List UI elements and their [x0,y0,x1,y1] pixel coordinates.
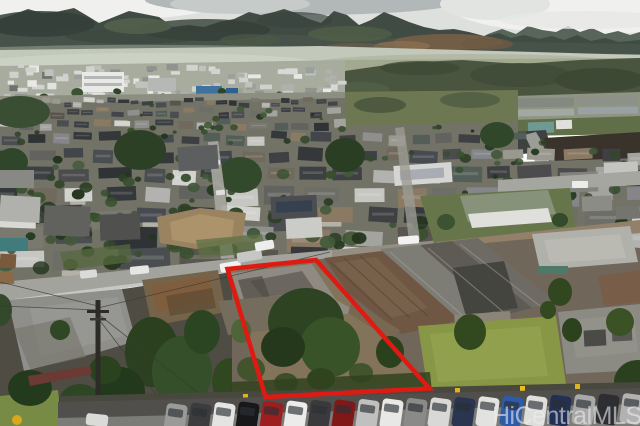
svg-text:HiCentralMLS: HiCentralMLS [492,402,640,426]
